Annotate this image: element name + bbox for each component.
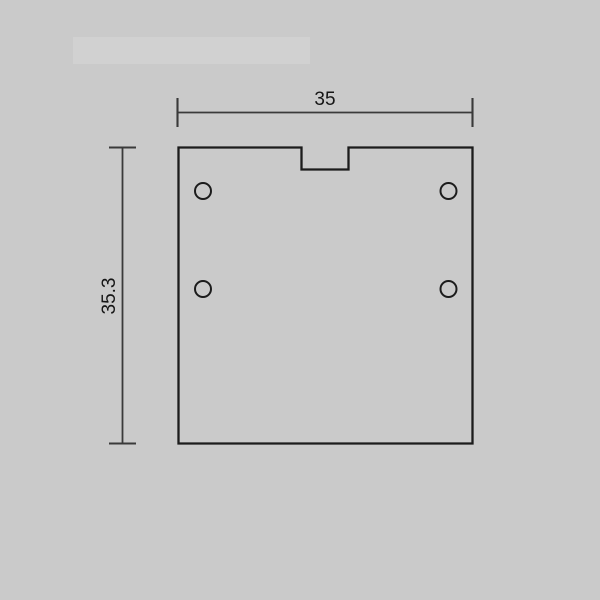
mounting-hole-mid-right	[441, 281, 457, 297]
mounting-hole-top-left	[195, 183, 211, 199]
plate-outline	[179, 148, 473, 444]
faded-watermark-band	[73, 37, 310, 64]
drawing-page: 35 35.3	[0, 0, 600, 600]
technical-drawing-canvas: 35 35.3	[0, 0, 600, 600]
width-dimension: 35	[178, 89, 473, 127]
mounting-hole-top-right	[441, 183, 457, 199]
width-dimension-label: 35	[314, 89, 335, 110]
height-dimension-label: 35.3	[99, 278, 120, 315]
mounting-hole-mid-left	[195, 281, 211, 297]
height-dimension: 35.3	[99, 148, 136, 444]
